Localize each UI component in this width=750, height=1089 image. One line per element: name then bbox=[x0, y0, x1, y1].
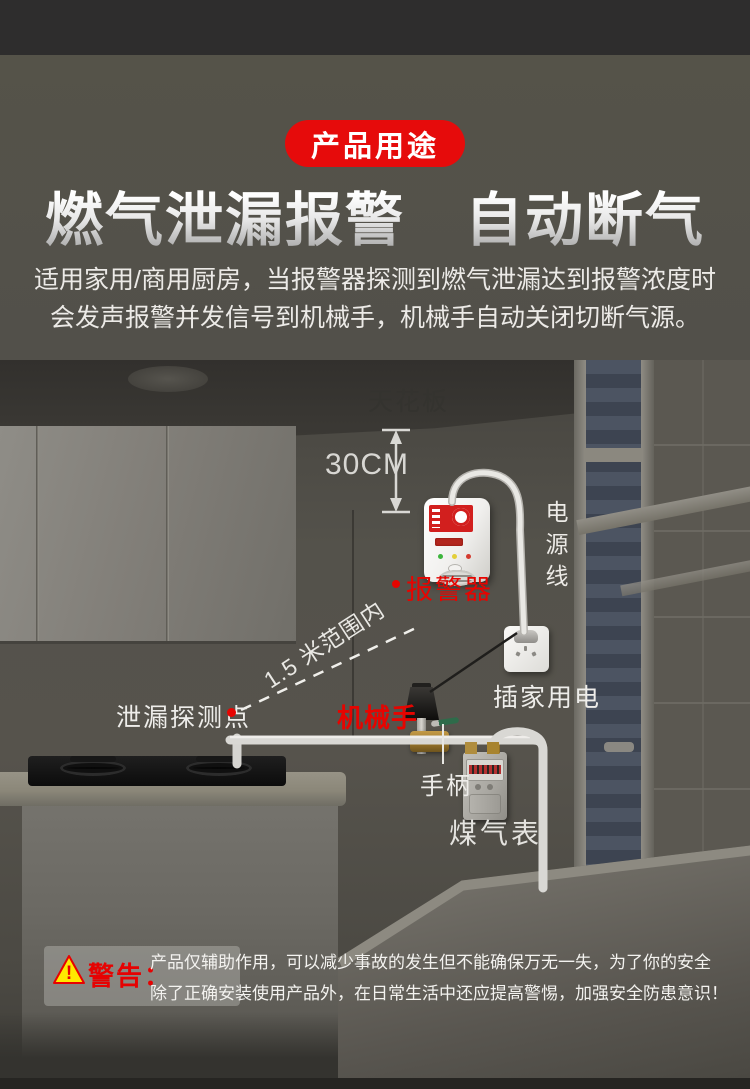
label-ceiling: 天花板 bbox=[368, 382, 449, 418]
top-dark-bar bbox=[0, 0, 750, 55]
label-power-cord: 电源线 bbox=[538, 500, 572, 596]
header-section: 产品用途 燃气泄漏报警 自动断气 适用家用/商用厨房，当报警器探测到燃气泄漏达到… bbox=[0, 55, 750, 360]
label-distance-30cm: 30CM bbox=[325, 448, 409, 482]
page-subtitle: 适用家用/商用厨房，当报警器探测到燃气泄漏达到报警浓度时 会发声报警并发信号到机… bbox=[0, 261, 750, 337]
label-handle: 手柄 bbox=[420, 766, 472, 801]
bottom-dark-bar bbox=[0, 1078, 750, 1089]
arrowhead-up bbox=[390, 430, 402, 444]
label-alarm: 报警器 bbox=[406, 568, 493, 607]
label-gas-meter: 煤气表 bbox=[449, 812, 542, 852]
subtitle-line-1: 适用家用/商用厨房，当报警器探测到燃气泄漏达到报警浓度时 bbox=[0, 261, 750, 299]
section-badge: 产品用途 bbox=[285, 120, 465, 167]
warning-triangle-icon: ! bbox=[52, 954, 86, 991]
subtitle-line-2: 会发声报警并发信号到机械手，机械手自动关闭切断气源。 bbox=[0, 299, 750, 337]
svg-text:!: ! bbox=[66, 963, 72, 984]
marker-dot-icon bbox=[227, 708, 236, 717]
marker-dot-icon bbox=[392, 580, 400, 588]
warning-text: 产品仅辅助作用，可以减少事故的发生但不能确保万无一失，为了你的安全 除了正确安装… bbox=[150, 947, 746, 1009]
warning-line-1: 产品仅辅助作用，可以减少事故的发生但不能确保万无一失，为了你的安全 bbox=[150, 947, 746, 978]
label-socket: 插家用电 bbox=[493, 678, 601, 714]
page-title: 燃气泄漏报警 自动断气 bbox=[0, 173, 750, 257]
product-page: 产品用途 燃气泄漏报警 自动断气 适用家用/商用厨房，当报警器探测到燃气泄漏达到… bbox=[0, 0, 750, 1089]
kitchen-photo: 天花板 30CM 电源线 报警器 插家用电 泄漏探测点 1.5 米范围内 机械手… bbox=[0, 360, 750, 1078]
warning-line-2: 除了正确安装使用产品外，在日常生活中还应提高警惕，加强安全防患意识！ bbox=[150, 978, 746, 1009]
label-manipulator: 机械手 bbox=[337, 698, 418, 735]
arrowhead-down bbox=[390, 498, 402, 512]
